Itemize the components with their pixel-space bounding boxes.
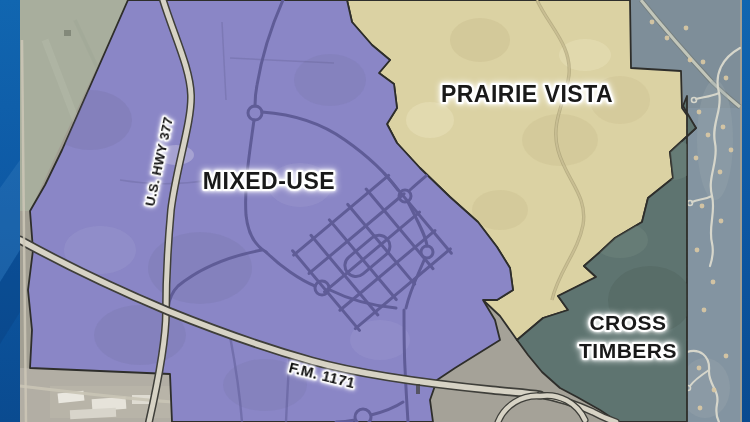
cross-timbers-line2: TIMBERS: [579, 339, 677, 362]
map-canvas: MIXED-USE PRAIRIE VISTA CROSSTIMBERS U.S…: [0, 0, 750, 422]
region-label-mixed-use: MIXED-USE: [203, 168, 335, 194]
news-map-graphic: MIXED-USE PRAIRIE VISTA CROSSTIMBERS U.S…: [0, 0, 750, 422]
cross-timbers-line1: CROSS: [589, 311, 666, 334]
left-accent-bar: [0, 0, 20, 422]
region-label-prairie-vista: PRAIRIE VISTA: [441, 81, 613, 107]
right-accent-bar: [742, 0, 750, 422]
